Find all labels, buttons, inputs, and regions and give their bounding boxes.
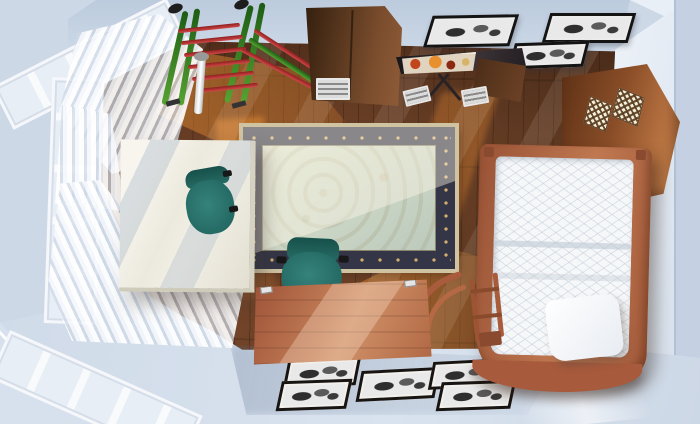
gym-pole-cap [194, 52, 209, 61]
chair-armrest [276, 256, 286, 264]
bw-photo [442, 385, 511, 406]
vent-grill [402, 85, 431, 107]
bed-post [484, 147, 494, 157]
bw-photo [362, 372, 435, 397]
media-desk [396, 40, 534, 112]
lattice-panel [611, 87, 644, 127]
easel-leg [437, 73, 461, 101]
chair-armrest [222, 170, 232, 177]
gym-rung [178, 23, 240, 33]
vent-grill [461, 86, 490, 107]
tall-wardrobe [306, 6, 402, 106]
bed-post [636, 150, 646, 160]
gym-foot [232, 100, 247, 108]
picture-frame [542, 13, 637, 43]
vent-grill [316, 78, 350, 100]
chair-armrest [229, 205, 239, 212]
bw-photo [282, 384, 347, 406]
room-render [0, 0, 700, 424]
chair-armrest [338, 255, 348, 263]
lattice-panel [583, 96, 612, 132]
bw-photo [548, 18, 630, 38]
pillow [544, 293, 625, 363]
picture-frame [276, 379, 353, 411]
writing-desk [252, 279, 431, 364]
